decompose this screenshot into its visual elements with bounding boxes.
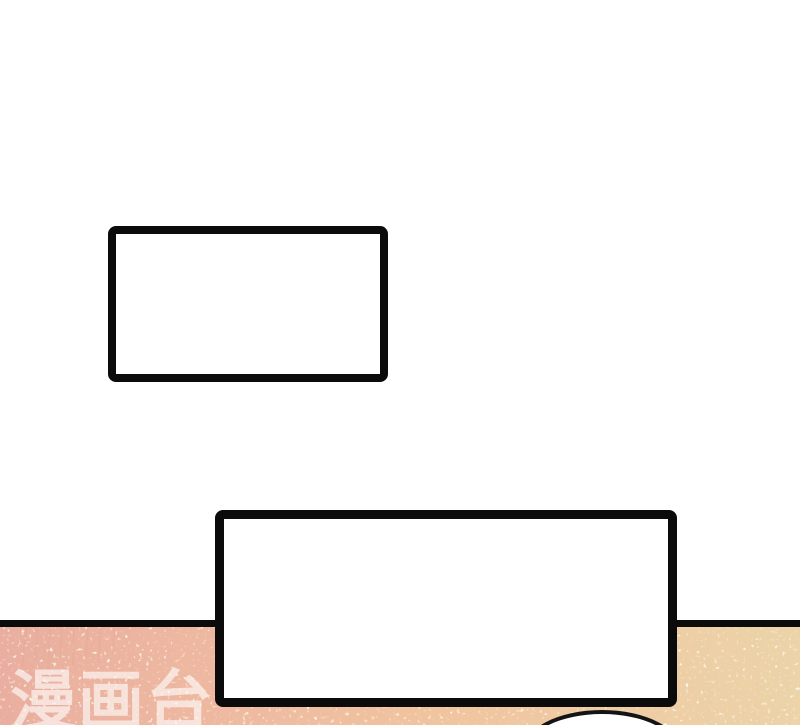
caption-box-1 [108, 226, 388, 382]
watermark-text: 漫画台 [10, 648, 214, 725]
caption-box-2 [215, 510, 677, 707]
comic-page: 漫画台 [0, 0, 800, 725]
